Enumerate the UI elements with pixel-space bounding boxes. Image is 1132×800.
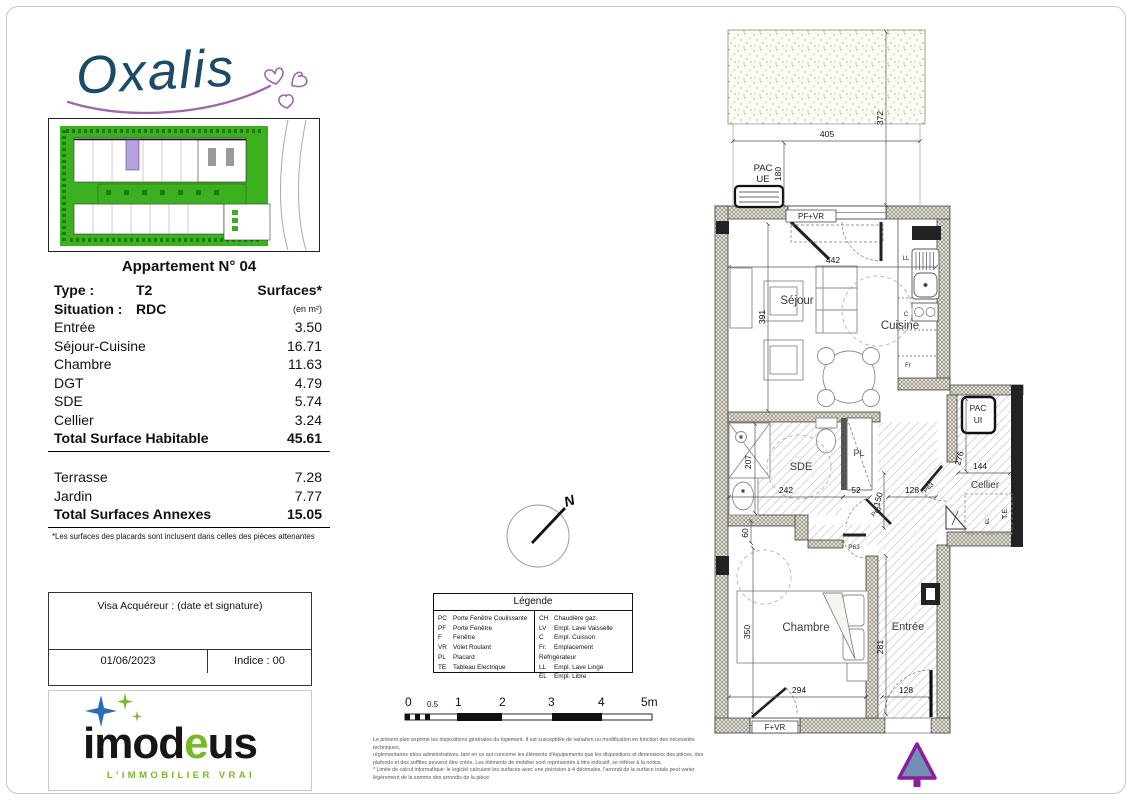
surface-footnote: *Les surfaces des placards sont inclusen… — [48, 532, 330, 541]
svg-text:207: 207 — [743, 455, 753, 469]
svg-text:405: 405 — [820, 129, 834, 139]
legend-item: PCPorte Fenêtre Coulissante — [438, 614, 534, 624]
scale-label: 3 — [548, 695, 555, 709]
total-annexes-value: 15.05 — [287, 506, 322, 522]
disclaimer-text: Le présent plan exprime les dispositions… — [373, 737, 707, 783]
svg-text:PF+VR: PF+VR — [798, 212, 824, 221]
surface-row: Entrée 3.50 — [48, 319, 330, 338]
visa-date: 01/06/2023 — [49, 650, 208, 673]
svg-text:281: 281 — [875, 640, 885, 654]
legend-item: VRVolet Roulant — [438, 643, 534, 653]
room-label: Chambre — [54, 356, 112, 372]
total-habitable-row: Total Surface Habitable 45.61 — [48, 430, 330, 452]
legend-item: PFPorte Fenêtre — [438, 624, 534, 634]
legend-item: PLPlacard — [438, 653, 534, 663]
floor-plan: 405 372 180 442 391 207 242 52 150 128 6… — [700, 0, 1132, 800]
scale-label: 1 — [455, 695, 462, 709]
scale-bar-track — [405, 714, 652, 720]
site-small-greens — [232, 210, 238, 231]
visa-box: Visa Acquéreur : (date et signature) 01/… — [48, 592, 312, 686]
imodeus-logo-box: imodeus L'IMMOBILIER VRAI — [48, 690, 312, 791]
type-label: Type : — [54, 282, 94, 298]
scale-label: 0.5 — [427, 700, 439, 709]
svg-text:EL: EL — [985, 518, 991, 525]
surfaces-header: Surfaces* — [257, 282, 322, 298]
disclaimer-line: Le présent plan exprime les dispositions… — [373, 737, 707, 752]
oxalis-logo: Oxalis — [50, 26, 320, 118]
apartment-surface-table: Appartement N° 04 Type : T2 Surfaces* Si… — [48, 258, 330, 541]
annex-label: Terrasse — [54, 469, 108, 485]
svg-text:52: 52 — [851, 485, 861, 495]
room-label: Cellier — [54, 412, 94, 428]
site-highlighted-unit — [126, 140, 139, 170]
oxalis-logo-text: Oxalis — [75, 38, 237, 105]
north-label: N — [562, 491, 577, 510]
room-label-sejour: Séjour — [780, 295, 813, 307]
type-value: T2 — [136, 282, 152, 298]
legend-title: Légende — [434, 594, 632, 611]
situation-value: RDC — [136, 301, 166, 317]
surface-row: Cellier 3.24 — [48, 412, 330, 431]
room-area: 3.50 — [295, 319, 322, 335]
scale-label: 2 — [499, 695, 506, 709]
clover-icon — [265, 68, 309, 108]
annex-row: Jardin 7.77 — [48, 488, 330, 507]
svg-text:350: 350 — [742, 625, 752, 639]
legend-item: LLEmpl. Lave Linge — [539, 663, 632, 673]
disclaimer-line: légèrement de la somme des arrondis de l… — [373, 775, 707, 783]
garden-area — [728, 30, 925, 124]
surface-row: SDE 5.74 — [48, 393, 330, 412]
annex-area: 7.77 — [295, 488, 322, 504]
scale-bar-segment — [552, 713, 602, 721]
svg-text:LL: LL — [903, 256, 910, 262]
scale-label: 4 — [598, 695, 605, 709]
site-courtyard — [98, 184, 246, 204]
room-label-cellier: Cellier — [971, 480, 1000, 491]
svg-text:128: 128 — [899, 685, 913, 695]
site-plan — [48, 118, 320, 252]
annex-area: 7.28 — [295, 469, 322, 485]
legend-item: LVEmpl. Lave Vaisselle — [539, 624, 632, 634]
svg-text:442: 442 — [826, 255, 840, 265]
svg-text:242: 242 — [779, 485, 793, 495]
legend-item: CHChaudière gaz. — [539, 614, 632, 624]
surfaces-unit: (en m²) — [293, 304, 322, 314]
room-label-cuisine: Cuisine — [881, 320, 919, 332]
visa-indice: Indice : 00 — [208, 650, 311, 673]
situation-row: Situation : RDC (en m²) — [48, 301, 330, 320]
svg-text:128: 128 — [905, 485, 919, 495]
disclaimer-line: * Limite de calcul informatique: le logi… — [373, 767, 707, 775]
legend-item: Fr.Emplacement Réfrigérateur — [539, 643, 632, 662]
room-label: Entrée — [54, 319, 95, 335]
imodeus-logo: imodeus L'IMMOBILIER VRAI — [49, 691, 309, 788]
surface-row: Chambre 11.63 — [48, 356, 330, 375]
entrance-arrow-icon — [899, 744, 935, 787]
imodeus-wordmark: imodeus — [83, 719, 257, 768]
legend-item: CEmpl. Cuisson — [539, 633, 632, 643]
legend-item: FFenêtre — [438, 633, 534, 643]
total-habitable-label: Total Surface Habitable — [54, 430, 209, 446]
svg-text:PAC: PAC — [970, 403, 987, 413]
scale-bar: 0 0.5 1 2 3 4 5m — [397, 694, 667, 728]
total-annexes-label: Total Surfaces Annexes — [54, 506, 211, 522]
imodeus-tagline: L'IMMOBILIER VRAI — [107, 770, 255, 781]
room-label: SDE — [54, 393, 83, 409]
apartment-title: Appartement N° 04 — [48, 258, 330, 275]
room-area: 5.74 — [295, 393, 322, 409]
legend-left-column: PCPorte Fenêtre Coulissante PFPorte Fenê… — [434, 611, 534, 673]
north-compass: N — [492, 488, 612, 598]
situation-label: Situation : — [54, 301, 122, 317]
annex-label: Jardin — [54, 488, 92, 504]
compass-needle — [532, 508, 565, 543]
visa-title: Visa Acquéreur : (date et signature) — [49, 593, 311, 649]
disclaimer-line: plafonds et des soffites peuvent être cr… — [373, 760, 707, 768]
svg-text:F+VR: F+VR — [765, 723, 786, 732]
room-area: 16.71 — [287, 338, 322, 354]
room-label-chambre: Chambre — [782, 622, 829, 634]
room-label-sde: SDE — [790, 461, 813, 473]
visa-bottom-row: 01/06/2023 Indice : 00 — [49, 649, 311, 673]
legend-right-column: CHChaudière gaz. LVEmpl. Lave Vaisselle … — [534, 611, 632, 673]
disclaimer-line: réglementaires et/ou administratives, ta… — [373, 752, 707, 760]
svg-text:180: 180 — [773, 167, 783, 181]
svg-text:P63: P63 — [848, 544, 860, 551]
total-habitable-value: 45.61 — [287, 430, 322, 446]
surface-row: DGT 4.79 — [48, 375, 330, 394]
total-annexes-row: Total Surfaces Annexes 15.05 — [48, 506, 330, 528]
green-star-icon — [117, 693, 133, 710]
svg-text:UI: UI — [974, 415, 983, 425]
room-area: 3.24 — [295, 412, 322, 428]
legend-item: ELEmpl. Libre — [539, 672, 632, 682]
svg-text:T.E.: T.E. — [1002, 507, 1009, 519]
scale-label: 5m — [641, 695, 658, 709]
svg-text:Fr: Fr — [905, 363, 911, 369]
svg-text:C: C — [904, 312, 909, 318]
scale-label: 0 — [405, 695, 412, 709]
svg-text:UE: UE — [756, 174, 769, 185]
pac-exterior-unit — [735, 186, 783, 207]
entry-niche — [926, 588, 935, 600]
svg-text:294: 294 — [792, 685, 806, 695]
room-label: Séjour-Cuisine — [54, 338, 146, 354]
room-label-entree: Entrée — [892, 621, 924, 633]
annex-row: Terrasse 7.28 — [48, 469, 330, 488]
svg-text:391: 391 — [757, 310, 767, 324]
surface-row: Séjour-Cuisine 16.71 — [48, 338, 330, 357]
legend-box: Légende PCPorte Fenêtre Coulissante PFPo… — [433, 593, 633, 673]
scale-bar-segment — [457, 713, 502, 721]
room-area: 11.63 — [288, 356, 322, 372]
room-label-pl: PL — [853, 448, 864, 458]
svg-text:144: 144 — [973, 461, 987, 471]
svg-text:PAC: PAC — [754, 163, 773, 174]
floorplan-document-page: Oxalis — [0, 0, 1132, 800]
svg-text:60: 60 — [740, 528, 750, 538]
legend-item: TETableau Electrique — [438, 663, 534, 673]
type-row: Type : T2 Surfaces* — [48, 282, 330, 301]
svg-text:372: 372 — [875, 111, 885, 125]
room-area: 4.79 — [295, 375, 322, 391]
room-label: DGT — [54, 375, 84, 391]
